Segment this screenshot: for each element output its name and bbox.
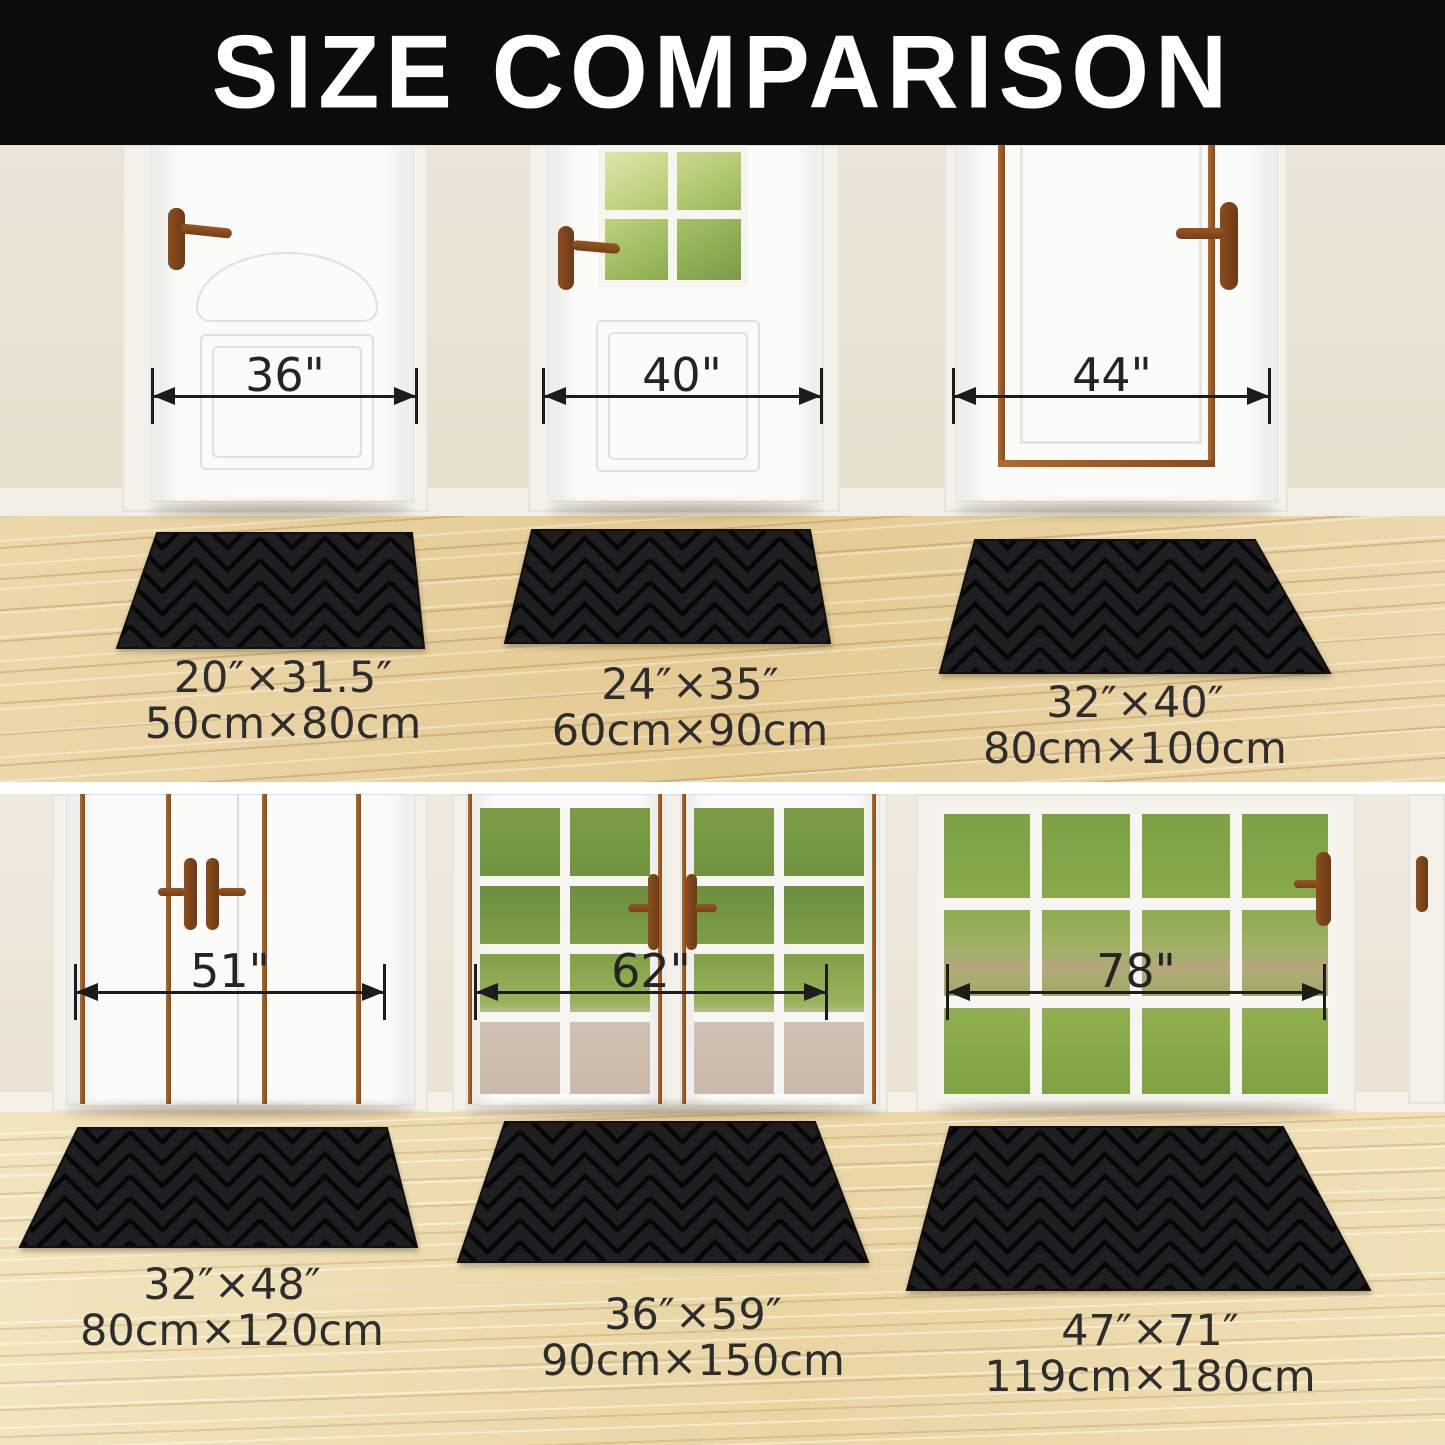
- door-6-shadow: [936, 1106, 1336, 1115]
- mat-size-caption-5: 36″×59″ 90cm×150cm: [541, 1292, 845, 1384]
- door-6-muntin: [1030, 806, 1042, 1102]
- arrow-line: [75, 991, 385, 994]
- arrowhead-left-icon: [954, 387, 976, 405]
- page-title: SIZE COMPARISON: [212, 13, 1234, 133]
- section-divider: [0, 782, 1445, 794]
- arrowhead-right-icon: [799, 387, 821, 405]
- door-4-shadow: [66, 1106, 414, 1115]
- door-6-handle-plate: [1316, 852, 1331, 926]
- mat-size-caption-4: 32″×48″ 80cm×120cm: [80, 1262, 384, 1354]
- side-door-handle: [1416, 856, 1428, 912]
- door-3-trim-right: [1208, 145, 1215, 467]
- door-5-handle-right: [686, 874, 697, 950]
- door-5-shadow: [466, 1106, 878, 1115]
- mat-size-cm: 90cm×150cm: [541, 1339, 845, 1384]
- mat-size-inches: 20″×31.5″: [145, 656, 422, 701]
- door-3-trim-bottom: [998, 460, 1215, 467]
- arrow-line: [953, 395, 1270, 398]
- door-4-handle-arm-right: [218, 888, 246, 896]
- arrowhead-right-icon: [394, 387, 416, 405]
- door-4-trim-1: [80, 794, 85, 1104]
- door-4-handle-left: [184, 858, 197, 930]
- door-5-trim: [468, 794, 472, 1104]
- arrowhead-left-icon: [153, 387, 175, 405]
- mat-size-inches: 36″×59″: [541, 1293, 845, 1338]
- door-5-muntin: [694, 1012, 864, 1022]
- arrowhead-left-icon: [76, 983, 98, 1001]
- door-3-shadow: [956, 505, 1276, 514]
- arrowhead-right-icon: [804, 983, 826, 1001]
- size-comparison-infographic: SIZE COMPARISON: [0, 0, 1445, 1445]
- mat-size-cm: 60cm×90cm: [552, 709, 829, 754]
- mat-size-caption-6: 47″×71″ 119cm×180cm: [984, 1308, 1315, 1400]
- door-4-trim-4: [356, 794, 361, 1104]
- mat-size-cm: 119cm×180cm: [984, 1355, 1315, 1400]
- arrowhead-left-icon: [948, 983, 970, 1001]
- door-6-muntin: [1230, 806, 1242, 1102]
- mat-size-inches: 32″×40″: [983, 681, 1287, 726]
- arrow-line: [543, 395, 822, 398]
- mat-size-caption-1: 20″×31.5″ 50cm×80cm: [145, 655, 422, 747]
- arrowhead-right-icon: [362, 983, 384, 1001]
- door-1-handle-plate: [168, 208, 185, 270]
- door-5-muntin: [480, 1012, 650, 1022]
- door-1-shadow: [150, 505, 412, 514]
- door-5-handle-arm-left: [628, 904, 650, 912]
- side-door-frame: [1408, 794, 1445, 1104]
- mat-size-inches: 24″×35″: [552, 663, 829, 708]
- arrow-line: [152, 395, 417, 398]
- door-5-muntin: [694, 944, 864, 954]
- mat-size-inches: 32″×48″: [80, 1263, 384, 1308]
- door-5-handle-left: [648, 874, 659, 950]
- door-2-handle-plate: [558, 226, 574, 290]
- mat-size-cm: 50cm×80cm: [145, 702, 422, 747]
- mat-size-caption-2: 24″×35″ 60cm×90cm: [552, 662, 829, 754]
- mat-size-caption-3: 32″×40″ 80cm×100cm: [983, 680, 1287, 772]
- door-5-muntin: [694, 876, 864, 886]
- arrow-line: [947, 991, 1325, 994]
- door-6-handle-arm: [1294, 880, 1318, 888]
- door-4-handle-right: [206, 858, 219, 930]
- door-6-muntin: [936, 898, 1336, 910]
- door-4-handle-arm-left: [158, 888, 186, 896]
- header-bar: SIZE COMPARISON: [0, 0, 1445, 145]
- door-4-trim-2: [166, 794, 171, 1104]
- arrowhead-left-icon: [476, 983, 498, 1001]
- arrowhead-right-icon: [1247, 387, 1269, 405]
- arrowhead-left-icon: [544, 387, 566, 405]
- door-3-trim-left: [998, 145, 1005, 467]
- door-5-muntin: [480, 876, 650, 886]
- door-5-trim: [872, 794, 876, 1104]
- door-3-handle-plate: [1220, 202, 1238, 290]
- door-5-handle-arm-right: [695, 904, 717, 912]
- door-2-window-muntin-horizontal: [598, 210, 748, 219]
- arrowhead-right-icon: [1302, 983, 1324, 1001]
- door-2-shadow: [548, 505, 822, 514]
- door-3-handle-lever: [1176, 228, 1224, 239]
- mat-size-cm: 80cm×120cm: [80, 1309, 384, 1354]
- mat-size-cm: 80cm×100cm: [983, 727, 1287, 772]
- mat-size-inches: 47″×71″: [984, 1309, 1315, 1354]
- arrow-line: [475, 991, 827, 994]
